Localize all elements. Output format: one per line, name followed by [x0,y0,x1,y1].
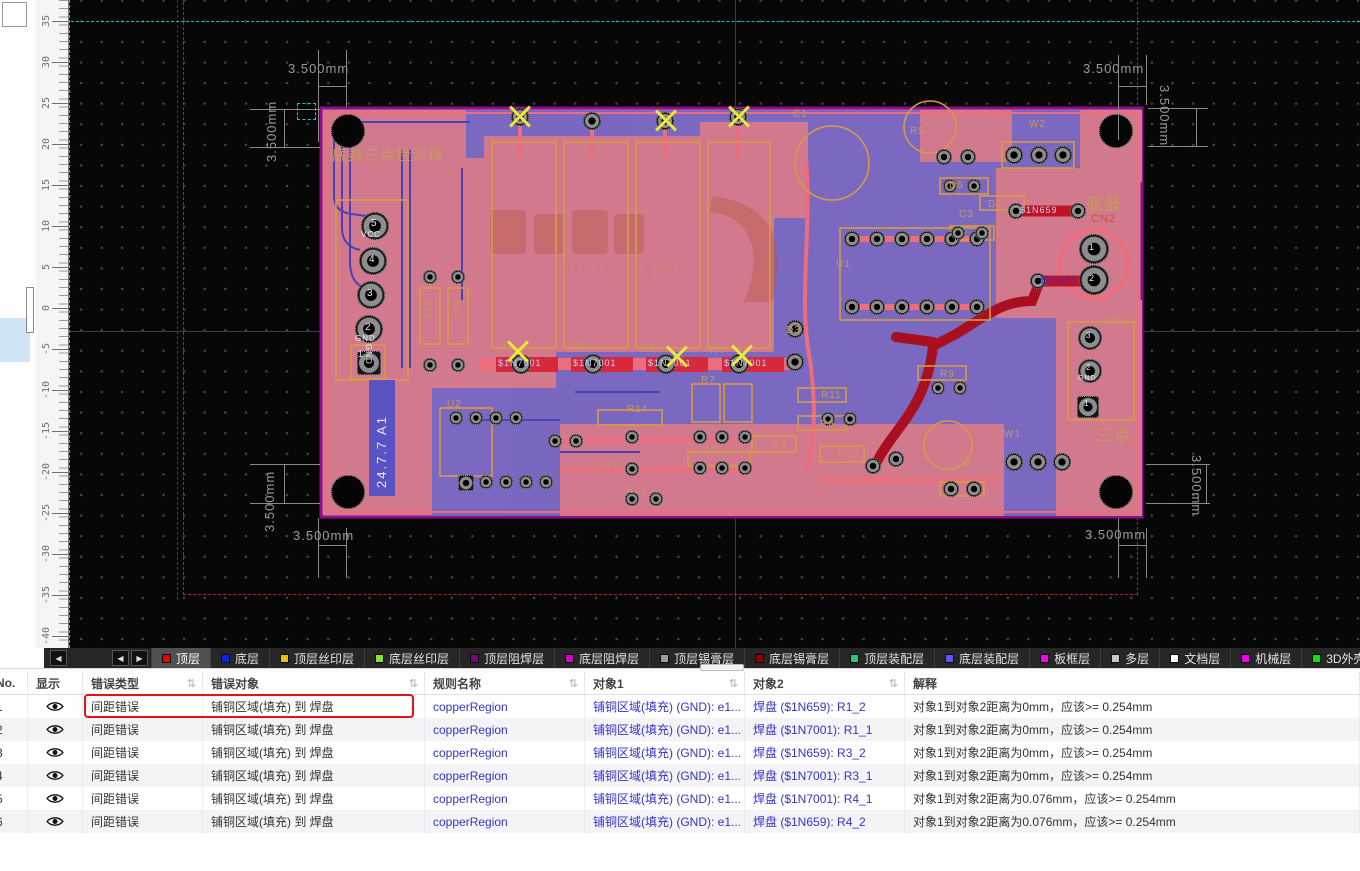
pcb-pad[interactable] [1053,453,1071,471]
pcb-pad[interactable] [966,481,982,497]
error-object-cell: 铺铜区域(填充) 到 焊盘 [203,695,425,718]
layer-tab-机械层[interactable]: 机械层 [1230,648,1301,668]
layer-color-swatch [280,654,289,663]
no-cell: 6 [0,810,28,833]
layer-color-swatch [375,654,384,663]
drc-error-row[interactable]: 6间距错误铺铜区域(填充) 到 焊盘copperRegion铺铜区域(填充) (… [0,810,1360,833]
ruler-label: 15 [41,170,51,200]
visibility-eye-icon[interactable] [46,746,64,759]
column-header-label: No. [0,676,15,690]
drc-error-row[interactable]: 1间距错误铺铜区域(填充) 到 焊盘copperRegion铺铜区域(填充) (… [0,695,1360,718]
pcb-pad[interactable] [975,226,989,240]
silkscreen-label: R5 [910,127,925,137]
ruler-label: -10 [41,375,51,405]
ruler-label: -30 [41,539,51,569]
explanation-cell: 对象1到对象2距离为0.076mm，应该>= 0.254mm [905,810,1360,833]
explanation-cell: 对象1到对象2距离为0mm，应该>= 0.254mm [905,718,1360,741]
row-number: 4 [0,769,3,783]
pcb-pad[interactable] [1030,146,1048,164]
silkscreen-label: R10 [838,450,859,460]
silkscreen-label: R2 [572,342,587,352]
pcb-pad[interactable] [786,353,804,371]
silkscreen-label: R3 [641,344,656,354]
layer-color-swatch [470,654,479,663]
dimension-label: 3.500mm [1085,527,1146,542]
pcb-pad[interactable] [943,481,959,497]
silkscreen-label: 底鼓 [1086,196,1122,213]
silkscreen-label: U1 [836,260,851,270]
error-object-cell: 铺铜区域(填充) 到 焊盘 [203,810,425,833]
pcb-pad[interactable] [539,475,553,489]
sort-icon[interactable]: ⇅ [729,677,738,690]
pcb-pad[interactable] [449,411,463,425]
mounting-hole [1099,475,1133,509]
mounting-hole [331,475,365,509]
layer-color-swatch [755,654,764,663]
explanation-cell: 对象1到对象2距离为0mm，应该>= 0.254mm [905,764,1360,787]
no-cell: 4 [0,764,28,787]
silkscreen-label: R7 [701,376,716,386]
silkscreen-label: 1 [1084,400,1089,408]
layer-tab-底层[interactable]: 底层 [210,648,269,668]
layer-tab-底层丝印层[interactable]: 底层丝印层 [364,648,459,668]
silkscreen-label: W1 [1004,430,1021,440]
layer-tab-label: 顶层阻焊层 [484,650,544,667]
rule-name-link[interactable]: copperRegion [425,695,585,718]
ruler-label: 30 [41,47,51,77]
ruler-label: -5 [41,334,51,364]
pcb-pad[interactable] [894,299,910,315]
column-header-label: 错误对象 [211,675,259,692]
layer-tab-label: 板框层 [1054,650,1090,667]
layer-tab-label: 底层装配层 [959,650,1019,667]
layer-tab-顶层阻焊层[interactable]: 顶层阻焊层 [459,648,554,668]
silkscreen-label: R8 [772,441,787,451]
ruler-label: 10 [41,211,51,241]
silkscreen-label: R11 [821,391,842,401]
pcb-pad[interactable] [1005,453,1023,471]
tabs-scroll-right-icon[interactable]: ▶ [131,650,148,666]
pcb-pad[interactable] [649,492,663,506]
layer-tab-底层阻焊层[interactable]: 底层阻焊层 [554,648,649,668]
pcb-pad[interactable] [625,430,639,444]
silkscreen-label: GND [364,344,372,365]
drc-table-header: No.显示错误类型⇅错误对象⇅规则名称⇅对象1⇅对象2⇅解释 [0,672,1360,695]
silkscreen-label: VCC [361,231,381,239]
silkscreen-label: C1 [793,110,808,120]
silkscreen-label: D4 [956,459,971,469]
vertical-scrollbar[interactable] [26,287,34,333]
no-cell: 5 [0,787,28,810]
pcb-pad[interactable] [865,458,881,474]
no-cell: 3 [0,741,28,764]
ruler-label: -15 [41,416,51,446]
mounting-hole [1099,114,1133,148]
silkscreen-label: $1N659 [1020,206,1058,215]
column-header-label: 错误类型 [91,675,139,692]
explanation-cell: 对象1到对象2距离为0mm，应该>= 0.254mm [905,741,1360,764]
ruler-label: 25 [41,88,51,118]
silkscreen-label: CN2 [1091,214,1116,225]
drc-table: No.显示错误类型⇅错误对象⇅规则名称⇅对象1⇅对象2⇅解释 1间距错误铺铜区域… [0,672,1360,871]
layer-tab-顶层丝印层[interactable]: 顶层丝印层 [269,648,364,668]
visibility-eye-icon[interactable] [46,815,64,828]
error-object-cell: 铺铜区域(填充) 到 焊盘 [203,764,425,787]
layer-bar: ◀ ◀ ▶ 顶层底层顶层丝印层底层丝印层顶层阻焊层底层阻焊层顶层锡膏层底层锡膏层… [0,648,1360,668]
watermark-text: Flyover AI [527,262,703,277]
pcb-pad[interactable] [951,226,965,240]
object2-link[interactable]: 焊盘 ($1N659): R4_2 [745,810,905,833]
left-panel [0,0,37,648]
layer-color-swatch [221,654,230,663]
vertical-ruler: 35302520151050-5-10-15-20-25-30-35-40 [36,0,69,648]
drc-error-row[interactable]: 2间距错误铺铜区域(填充) 到 焊盘copperRegion铺铜区域(填充) (… [0,718,1360,741]
pcb-pad[interactable] [499,475,513,489]
column-header-错误类型[interactable]: 错误类型⇅ [83,672,203,694]
pcb-pad[interactable] [693,461,707,475]
object1-link[interactable]: 铺铜区域(填充) (GND): e1... [585,695,745,718]
layer-tab-多层[interactable]: 多层 [1100,648,1159,668]
silkscreen-label: 底鼓三点检测板 [332,148,444,163]
silkscreen-label: R15 [626,486,647,496]
pcb-pad[interactable] [569,434,583,448]
silkscreen-label: C3 [959,210,974,220]
ruler-label: 35 [41,6,51,36]
layer-color-swatch [1040,654,1049,663]
board-version-tag: 24.7.7 A1 [369,380,395,496]
pcb-pad[interactable] [451,270,465,284]
dimension-label: 3.500mm [1083,61,1144,76]
layer-tab-label: 多层 [1125,650,1149,667]
column-header-对象1[interactable]: 对象1⇅ [585,672,745,694]
row-number: 6 [0,815,3,829]
pcb-pad[interactable] [489,411,503,425]
cursor-guide-horizontal [36,21,1360,22]
column-header-显示: 显示 [28,672,83,694]
error-marker-icon[interactable] [729,343,755,369]
visibility-eye-icon[interactable] [46,769,64,782]
pcb-canvas[interactable]: 底鼓三点检测板底鼓三点CN2CN3R5C1W2D5C3D2U1D3R1R2R3R… [0,0,1360,648]
mounting-hole [331,114,365,148]
cursor-guide-vertical [69,0,70,648]
rule-name-link[interactable]: copperRegion [425,741,585,764]
column-header-解释: 解释 [905,672,1360,694]
pcb-pad[interactable] [894,231,910,247]
error-type-cell: 间距错误 [83,695,203,718]
panel-collapse-icon[interactable]: ◀ [50,650,67,666]
pcb-pad[interactable] [931,381,945,395]
no-cell: 2 [0,718,28,741]
layer-tab-label: 顶层丝印层 [294,650,354,667]
layer-tab-3D外壳边框层[interactable]: 3D外壳边框层 [1301,648,1360,668]
layer-tab-label: 底层锡膏层 [769,650,829,667]
visibility-cell [28,787,83,810]
layer-color-swatch [162,654,171,663]
layer-tab-label: 文档层 [1184,650,1220,667]
column-header-label: 对象1 [593,675,624,692]
visibility-cell [28,741,83,764]
pcb-pad[interactable] [583,112,601,130]
pcb-pad[interactable] [548,434,562,448]
object1-link[interactable]: 铺铜区域(填充) (GND): e1... [585,741,745,764]
layer-color-swatch [1312,654,1321,663]
silkscreen-label: $1N7001 [573,359,617,368]
pcb-pad[interactable] [960,149,976,165]
object2-link[interactable]: 焊盘 ($1N7001): R1_1 [745,718,905,741]
pcb-pad[interactable] [869,299,885,315]
layer-tab-label: 底层阻焊层 [579,650,639,667]
silkscreen-label: 3 [1086,332,1091,340]
pcb-pad[interactable] [936,149,952,165]
explanation-cell: 对象1到对象2距离为0mm，应该>= 0.254mm [905,695,1360,718]
ruler-label: -25 [41,498,51,528]
layer-color-swatch [565,654,574,663]
rule-name-link[interactable]: copperRegion [425,718,585,741]
silkscreen-label: $1N659 [1040,276,1078,285]
drc-error-row[interactable]: 5间距错误铺铜区域(填充) 到 焊盘copperRegion铺铜区域(填充) (… [0,787,1360,810]
dimension-label: 3.500mm [1157,85,1172,146]
silkscreen-label: 4 [369,255,376,265]
sort-icon[interactable]: ⇅ [187,677,196,690]
silkscreen-label: W2 [1029,120,1046,130]
pcb-pad[interactable] [693,430,707,444]
object2-link[interactable]: 焊盘 ($1N7001): R4_1 [745,787,905,810]
object2-link[interactable]: 焊盘 ($1N659): R3_2 [745,741,905,764]
drc-table-body: 1间距错误铺铜区域(填充) 到 焊盘copperRegion铺铜区域(填充) (… [0,695,1360,833]
row-number: 5 [0,792,3,806]
board-version-text: 24.7.7 A1 [374,415,389,488]
silkscreen-label: R12 [702,446,723,456]
error-type-cell: 间距错误 [83,787,203,810]
silkscreen-label: GND [1078,375,1097,382]
silkscreen-label: D5 [949,181,964,191]
layer-color-swatch [850,654,859,663]
layer-tab-label: 顶层装配层 [864,650,924,667]
silkscreen-label: U2 [447,400,462,410]
visibility-cell [28,764,83,787]
pcb-square-pad[interactable] [458,475,474,491]
tabs-scroll-left-icon[interactable]: ◀ [112,650,129,666]
row-number: 2 [0,723,3,737]
selection-box [297,103,316,120]
error-object-cell: 铺铜区域(填充) 到 焊盘 [203,741,425,764]
silkscreen-label: 三点 [1096,427,1132,444]
pcb-pad[interactable] [919,299,935,315]
pcb-pad[interactable] [967,179,981,193]
panel-toggle-button[interactable] [2,2,27,27]
ruler-label: -20 [41,457,51,487]
error-type-cell: 间距错误 [83,810,203,833]
pcb-pad[interactable] [715,461,729,475]
layer-color-swatch [1241,654,1250,663]
silkscreen-label: D1 [604,461,619,471]
silkscreen-label: 2 [1089,274,1095,283]
silkscreen-label: R14 [627,405,648,415]
pcb-pad[interactable] [869,231,885,247]
row-number: 3 [0,746,3,760]
error-marker-icon[interactable] [653,108,679,134]
layer-tab-label: 机械层 [1255,650,1291,667]
silkscreen-label: R4 [710,346,725,356]
layer-tabs: 顶层底层顶层丝印层底层丝印层顶层阻焊层底层阻焊层顶层锡膏层底层锡膏层顶层装配层底… [151,648,1360,668]
pcb-pad[interactable] [451,358,465,372]
silkscreen-label: 1 [1089,243,1095,252]
object2-link[interactable]: 焊盘 ($1N7001): R3_1 [745,764,905,787]
rule-name-link[interactable]: copperRegion [425,810,585,833]
silkscreen-label: GND [355,335,376,343]
column-header-label: 规则名称 [433,675,481,692]
column-header-label: 对象2 [753,675,784,692]
error-marker-icon[interactable] [507,104,533,130]
ruler-label: -40 [41,621,51,651]
visibility-cell [28,695,83,718]
visibility-eye-icon[interactable] [46,723,64,736]
splitter-handle[interactable] [700,664,744,671]
pcb-pad[interactable] [625,462,639,476]
explanation-cell: 对象1到对象2距离为0.076mm，应该>= 0.254mm [905,787,1360,810]
pcb-pad[interactable] [919,231,935,247]
layer-tab-底层装配层[interactable]: 底层装配层 [934,648,1029,668]
silkscreen-label: CN3 [1104,316,1129,327]
layer-color-swatch [660,654,669,663]
layer-tab-label: 顶层 [176,650,200,667]
row-number: 1 [0,700,3,714]
drc-error-row[interactable]: 4间距错误铺铜区域(填充) 到 焊盘copperRegion铺铜区域(填充) (… [0,764,1360,787]
pcb-pad[interactable] [888,451,904,467]
board-overlay: 底鼓三点检测板底鼓三点CN2CN3R5C1W2D5C3D2U1D3R1R2R3R… [0,0,1360,648]
pcb-pad[interactable] [509,411,523,425]
ruler-label: 0 [41,293,51,323]
error-object-cell: 铺铜区域(填充) 到 焊盘 [203,718,425,741]
layer-tab-底层锡膏层[interactable]: 底层锡膏层 [744,648,839,668]
sort-icon[interactable]: ⇅ [569,677,578,690]
error-object-cell: 铺铜区域(填充) 到 焊盘 [203,787,425,810]
error-type-cell: 间距错误 [83,764,203,787]
no-cell: 1 [0,695,28,718]
rule-name-link[interactable]: copperRegion [425,787,585,810]
rule-name-link[interactable]: copperRegion [425,764,585,787]
silkscreen-label: 5 [371,219,378,229]
pcb-pad[interactable] [423,270,437,284]
error-type-cell: 间距错误 [83,718,203,741]
ruler-label: -35 [41,580,51,610]
pcb-editor-window: 底鼓三点检测板底鼓三点CN2CN3R5C1W2D5C3D2U1D3R1R2R3R… [0,0,1360,871]
layer-color-swatch [1111,654,1120,663]
ruler-label: 5 [41,252,51,282]
layer-tab-顶层[interactable]: 顶层 [151,648,210,668]
object1-link[interactable]: 铺铜区域(填充) (GND): e1... [585,718,745,741]
error-marker-icon[interactable] [726,104,752,130]
layer-tab-label: 底层丝印层 [389,650,449,667]
silkscreen-label: 2 [1086,364,1091,372]
pcb-pad[interactable] [1005,146,1023,164]
visibility-eye-icon[interactable] [46,792,64,805]
object1-link[interactable]: 铺铜区域(填充) (GND): e1... [585,787,745,810]
object1-link[interactable]: 铺铜区域(填充) (GND): e1... [585,810,745,833]
error-marker-icon[interactable] [664,344,690,370]
pcb-pad[interactable] [519,475,533,489]
object2-link[interactable]: 焊盘 ($1N659): R1_2 [745,695,905,718]
object1-link[interactable]: 铺铜区域(填充) (GND): e1... [585,764,745,787]
sort-icon[interactable]: ⇅ [889,677,898,690]
pcb-pad[interactable] [844,231,860,247]
silkscreen-label: R17 [451,300,460,320]
visibility-cell [28,810,83,833]
layer-tab-label: 3D外壳边框层 [1326,650,1360,667]
error-marker-icon[interactable] [505,339,531,365]
silkscreen-label: R16 [423,300,432,320]
pcb-pad[interactable] [715,430,729,444]
silkscreen-label: D3 [786,326,801,336]
silkscreen-label: D2 [988,200,1003,210]
silkscreen-label: 2 [365,323,372,333]
column-header-错误对象[interactable]: 错误对象⇅ [203,672,425,694]
error-type-cell: 间距错误 [83,741,203,764]
column-header-label: 显示 [36,675,60,692]
visibility-cell [28,718,83,741]
pcb-pad[interactable] [738,430,752,444]
column-header-label: 解释 [913,675,937,692]
pcb-pad[interactable] [843,412,857,426]
visibility-eye-icon[interactable] [46,700,64,713]
column-header-规则名称[interactable]: 规则名称⇅ [425,672,585,694]
pcb-pad[interactable] [738,461,752,475]
pcb-pad[interactable] [469,411,483,425]
pcb-pad[interactable] [944,299,960,315]
dimension-label: 3.500mm [262,471,277,532]
silkscreen-label: R6 [820,420,835,430]
layer-tab-顶层装配层[interactable]: 顶层装配层 [839,648,934,668]
layer-tab-板框层[interactable]: 板框层 [1029,648,1100,668]
pcb-pad[interactable] [953,381,967,395]
pcb-pad[interactable] [969,299,985,315]
pcb-pad[interactable] [844,299,860,315]
silkscreen-label: R9 [940,370,955,380]
drc-error-row[interactable]: 3间距错误铺铜区域(填充) 到 焊盘copperRegion铺铜区域(填充) (… [0,741,1360,764]
pcb-pad[interactable] [1054,146,1072,164]
pcb-pad[interactable] [479,475,493,489]
pcb-pad[interactable] [1029,453,1047,471]
layer-tab-文档层[interactable]: 文档层 [1159,648,1230,668]
pcb-pad[interactable] [1070,203,1086,219]
column-header-No.: No. [0,672,28,694]
column-header-对象2[interactable]: 对象2⇅ [745,672,905,694]
layer-color-swatch [1170,654,1179,663]
layer-color-swatch [945,654,954,663]
pcb-pad[interactable] [423,358,437,372]
ruler-label: 20 [41,129,51,159]
sort-icon[interactable]: ⇅ [409,677,418,690]
layer-tab-label: 底层 [235,650,259,667]
silkscreen-label: 3 [367,289,374,299]
